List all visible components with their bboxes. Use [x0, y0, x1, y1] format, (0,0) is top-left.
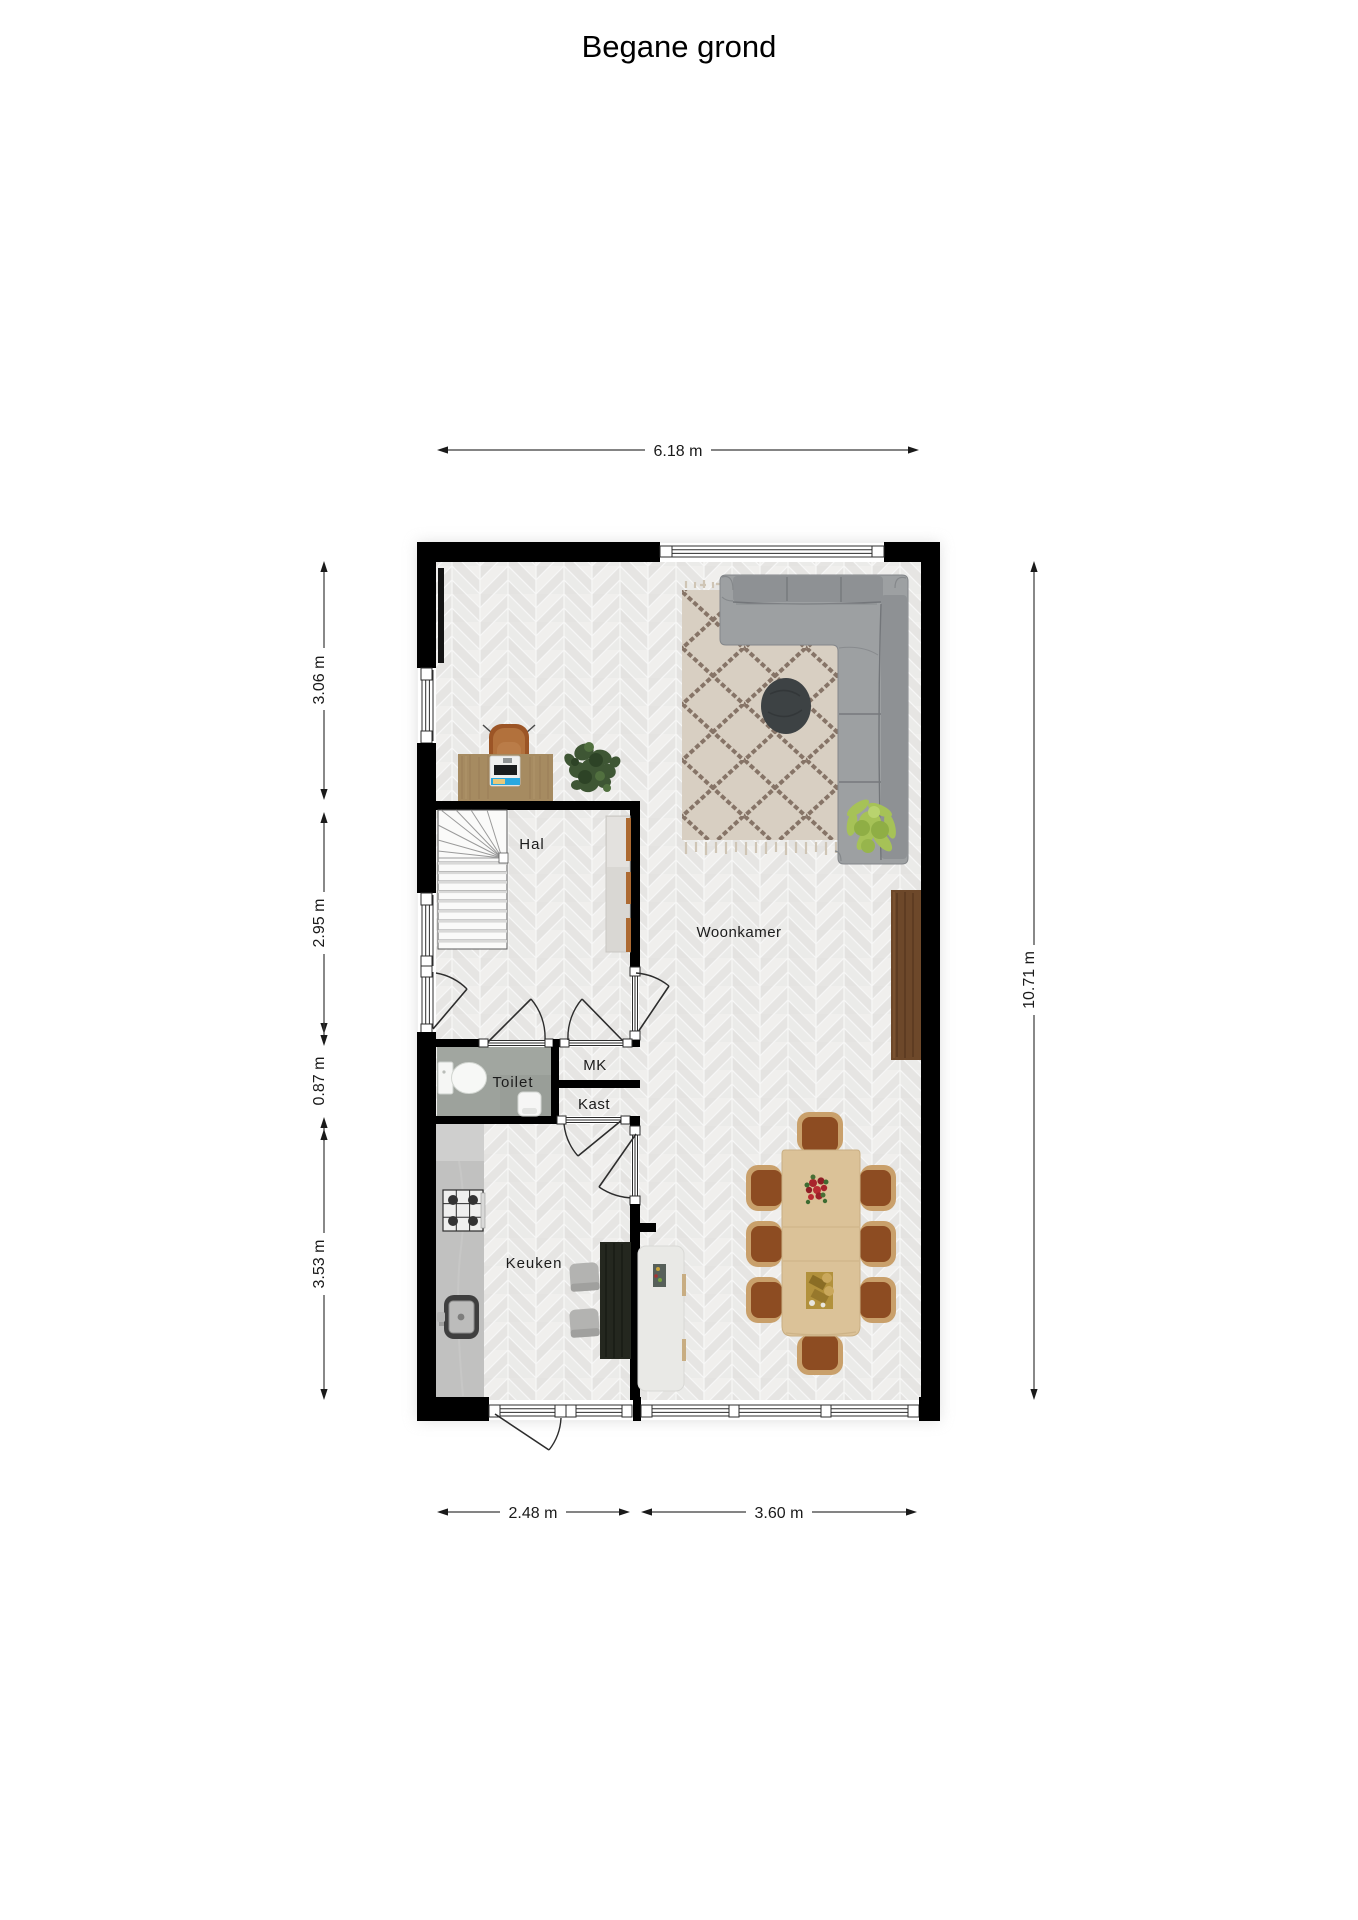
svg-text:Begane grond: Begane grond — [582, 29, 777, 64]
svg-text:MK: MK — [583, 1057, 607, 1074]
svg-text:Keuken: Keuken — [506, 1255, 563, 1272]
svg-text:Toilet: Toilet — [492, 1074, 533, 1091]
svg-text:2.95 m: 2.95 m — [311, 899, 328, 948]
svg-text:Woonkamer: Woonkamer — [696, 924, 781, 941]
svg-text:3.60 m: 3.60 m — [755, 1505, 804, 1522]
svg-text:6.18 m: 6.18 m — [654, 443, 703, 460]
svg-text:3.06 m: 3.06 m — [311, 656, 328, 705]
svg-text:Kast: Kast — [578, 1096, 610, 1113]
svg-text:0.87 m: 0.87 m — [311, 1057, 328, 1106]
svg-text:Hal: Hal — [519, 836, 545, 853]
svg-text:3.53 m: 3.53 m — [311, 1240, 328, 1289]
svg-text:10.71 m: 10.71 m — [1021, 951, 1038, 1009]
svg-text:2.48 m: 2.48 m — [509, 1505, 558, 1522]
